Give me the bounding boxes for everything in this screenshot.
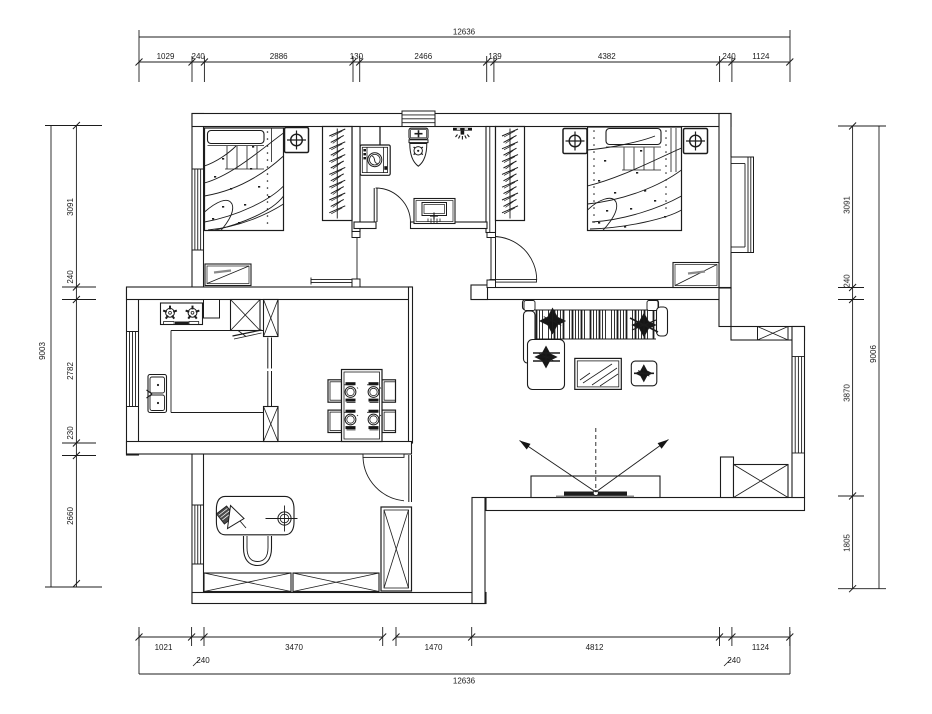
svg-text:12636: 12636 [453, 677, 476, 686]
svg-text:1805: 1805 [843, 534, 852, 552]
svg-text:4382: 4382 [598, 52, 616, 61]
svg-text:130: 130 [350, 52, 364, 61]
svg-text:4812: 4812 [586, 643, 604, 652]
svg-text:1124: 1124 [752, 643, 770, 652]
svg-text:139: 139 [488, 52, 502, 61]
svg-text:9003: 9003 [38, 342, 47, 360]
svg-text:3091: 3091 [66, 198, 75, 216]
svg-text:240: 240 [843, 274, 852, 288]
svg-text:3091: 3091 [843, 196, 852, 214]
svg-text:1021: 1021 [155, 643, 173, 652]
svg-text:1124: 1124 [752, 52, 770, 61]
svg-text:2782: 2782 [66, 362, 75, 380]
svg-text:12636: 12636 [453, 28, 476, 37]
svg-text:240: 240 [192, 52, 206, 61]
svg-text:1470: 1470 [425, 643, 443, 652]
svg-text:3470: 3470 [285, 643, 303, 652]
svg-text:1029: 1029 [157, 52, 175, 61]
svg-text:9006: 9006 [869, 345, 878, 363]
svg-text:3870: 3870 [843, 384, 852, 402]
svg-text:240: 240 [66, 270, 75, 284]
svg-text:2660: 2660 [66, 507, 75, 525]
svg-text:2886: 2886 [270, 52, 288, 61]
svg-text:240: 240 [722, 52, 736, 61]
svg-text:2466: 2466 [414, 52, 432, 61]
svg-text:230: 230 [66, 426, 75, 440]
